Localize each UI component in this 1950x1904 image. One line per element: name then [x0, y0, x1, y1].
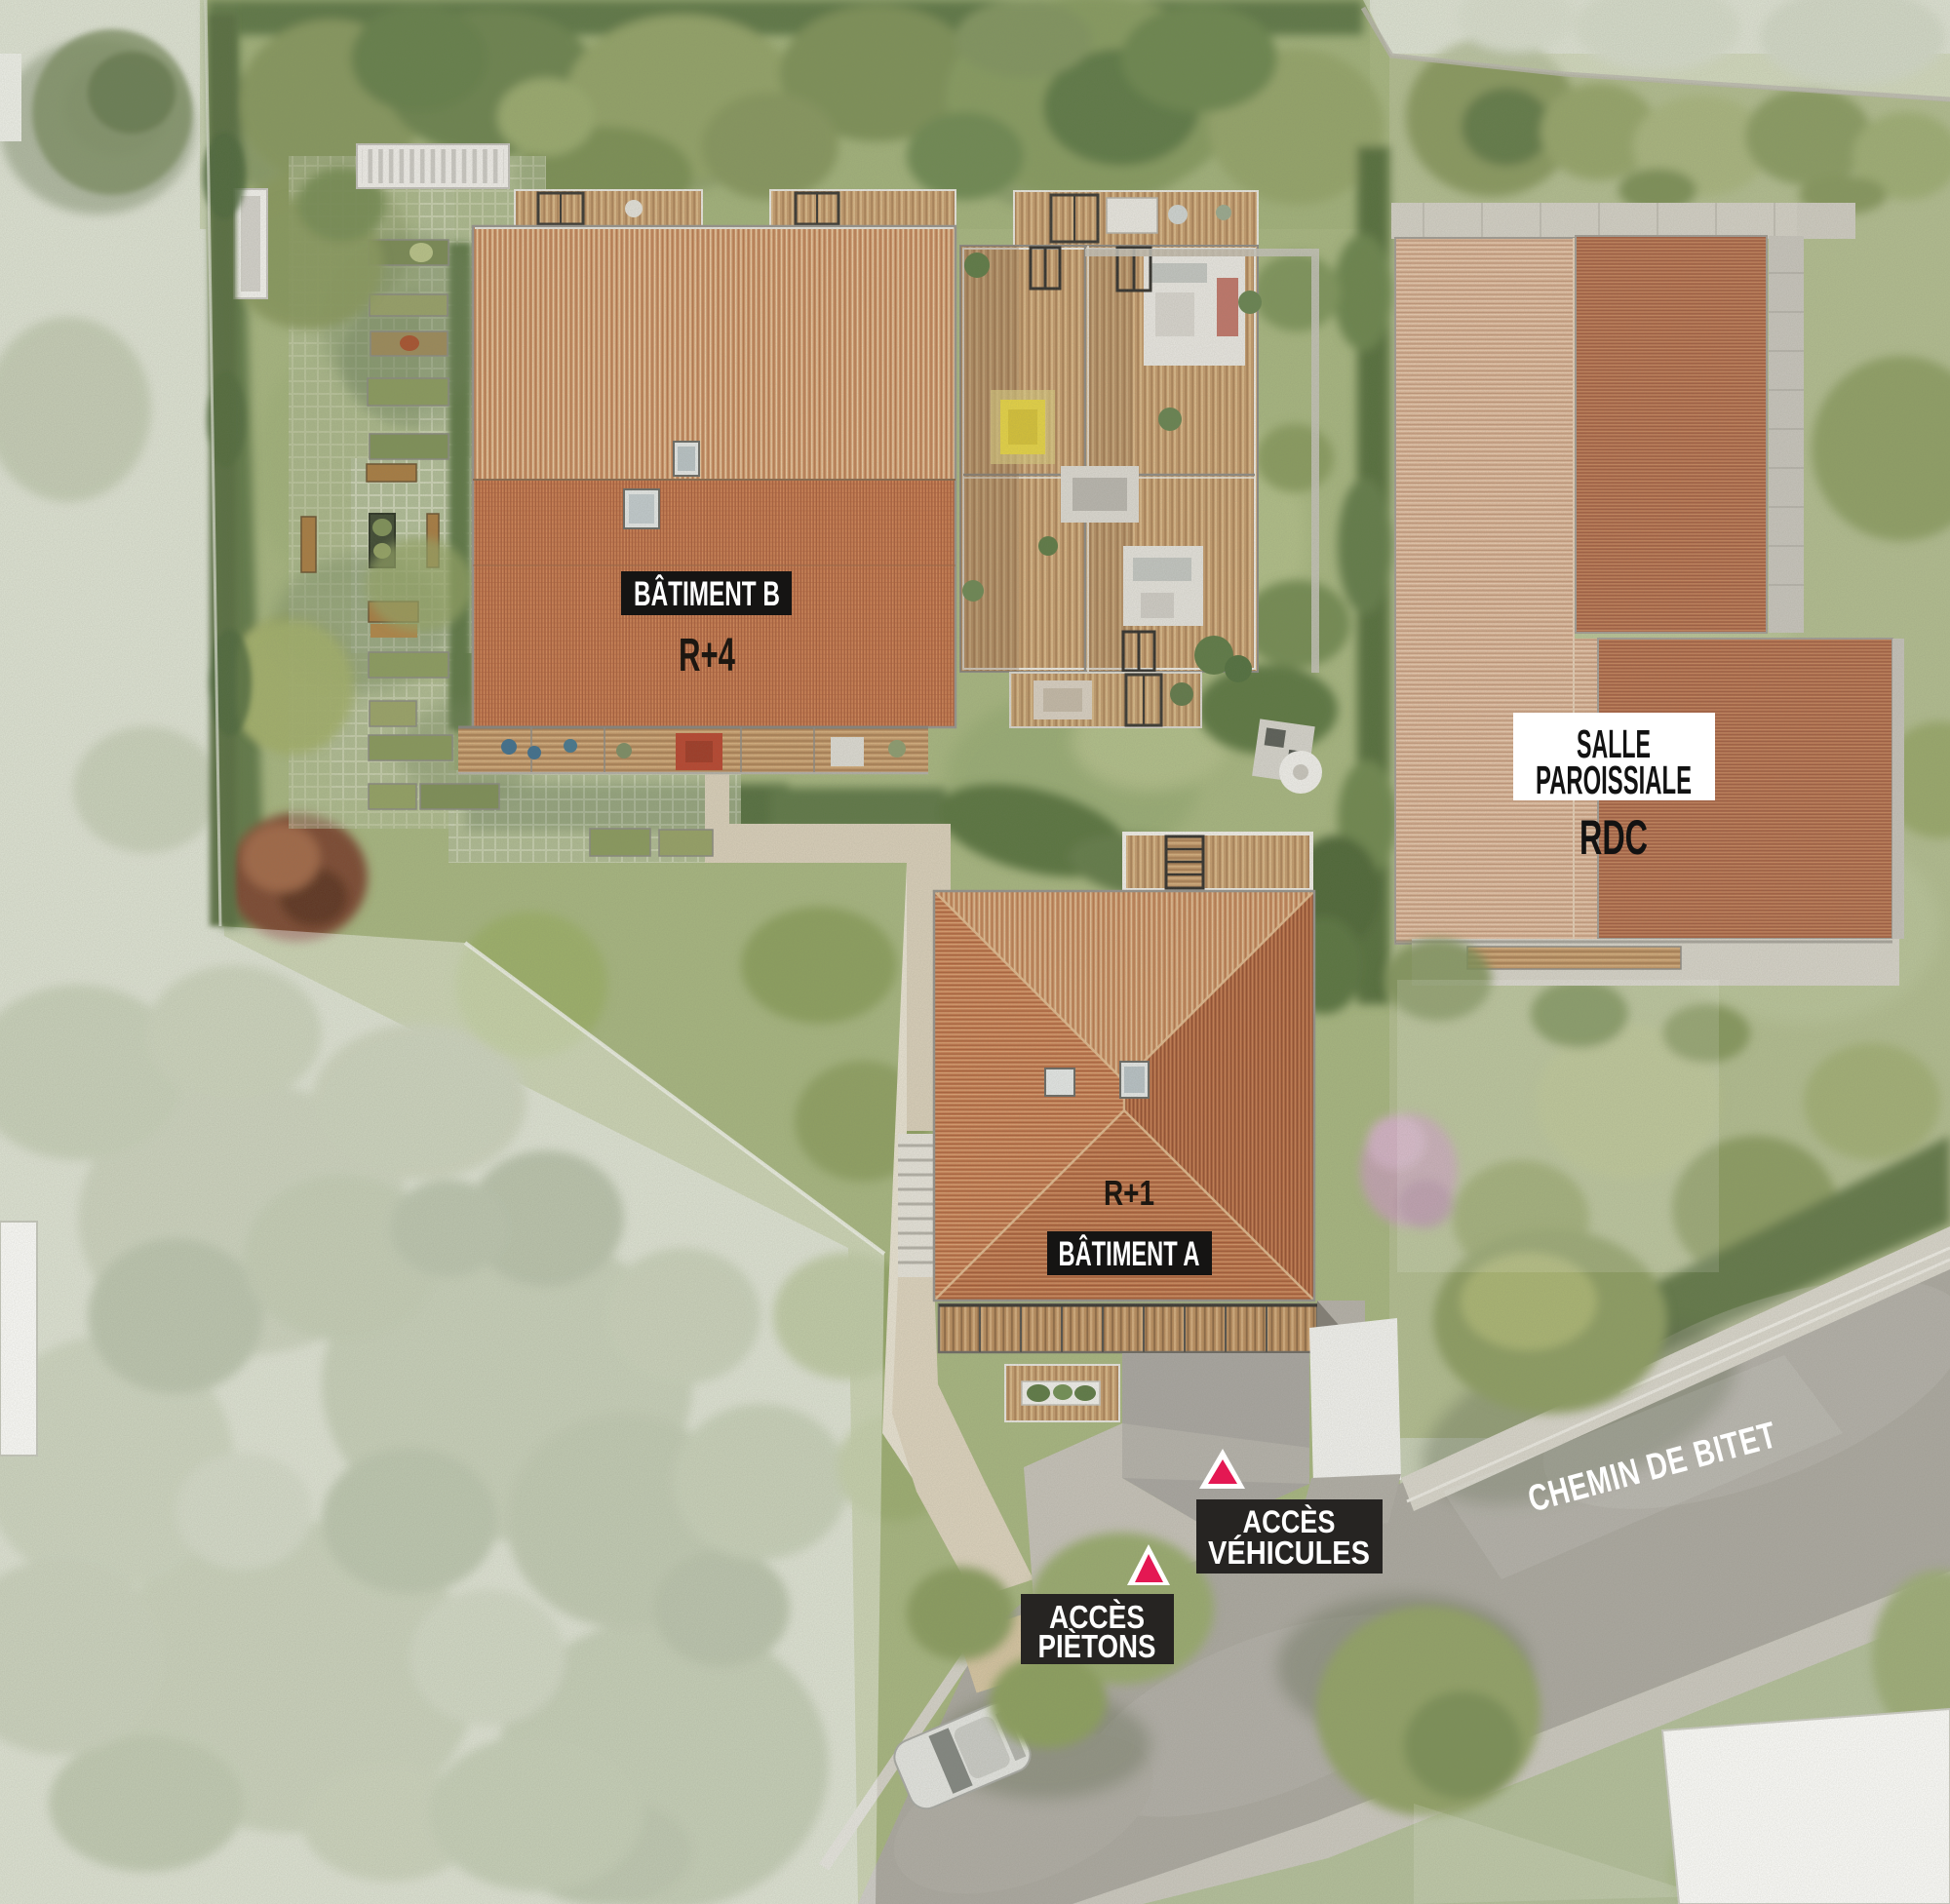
svg-text:BÂTIMENT A: BÂTIMENT A	[1059, 1234, 1200, 1273]
svg-text:R+4: R+4	[679, 630, 735, 681]
svg-text:BÂTIMENT B: BÂTIMENT B	[634, 574, 780, 613]
svg-text:R+1: R+1	[1104, 1173, 1154, 1213]
svg-text:PIÈTONS: PIÈTONS	[1038, 1628, 1156, 1664]
svg-text:VÉHICULES: VÉHICULES	[1208, 1535, 1370, 1571]
svg-text:PAROISSIALE: PAROISSIALE	[1536, 758, 1692, 802]
svg-text:RDC: RDC	[1579, 810, 1648, 865]
